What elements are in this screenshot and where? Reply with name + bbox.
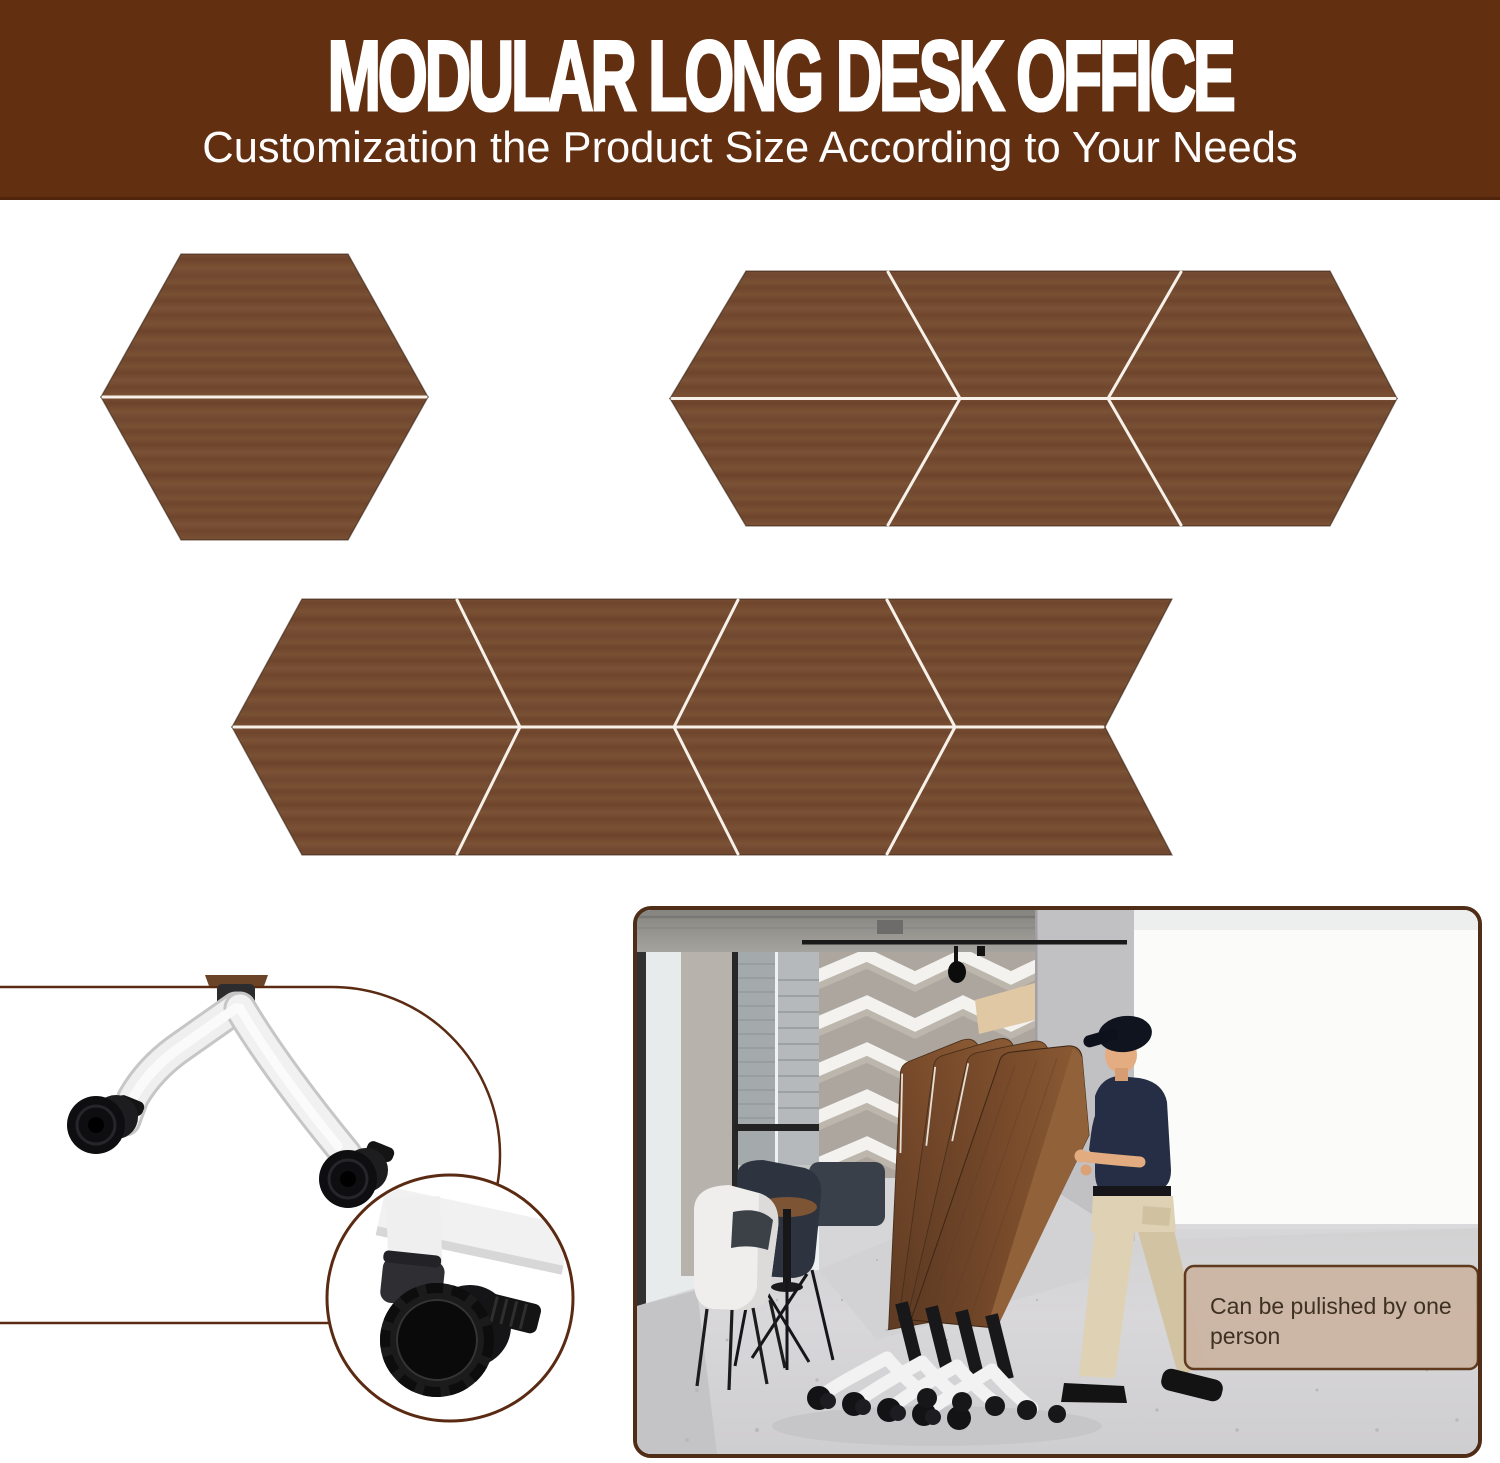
svg-text:Can be pulished by one: Can be pulished by one: [1210, 1293, 1452, 1319]
svg-text:person: person: [1210, 1323, 1280, 1349]
